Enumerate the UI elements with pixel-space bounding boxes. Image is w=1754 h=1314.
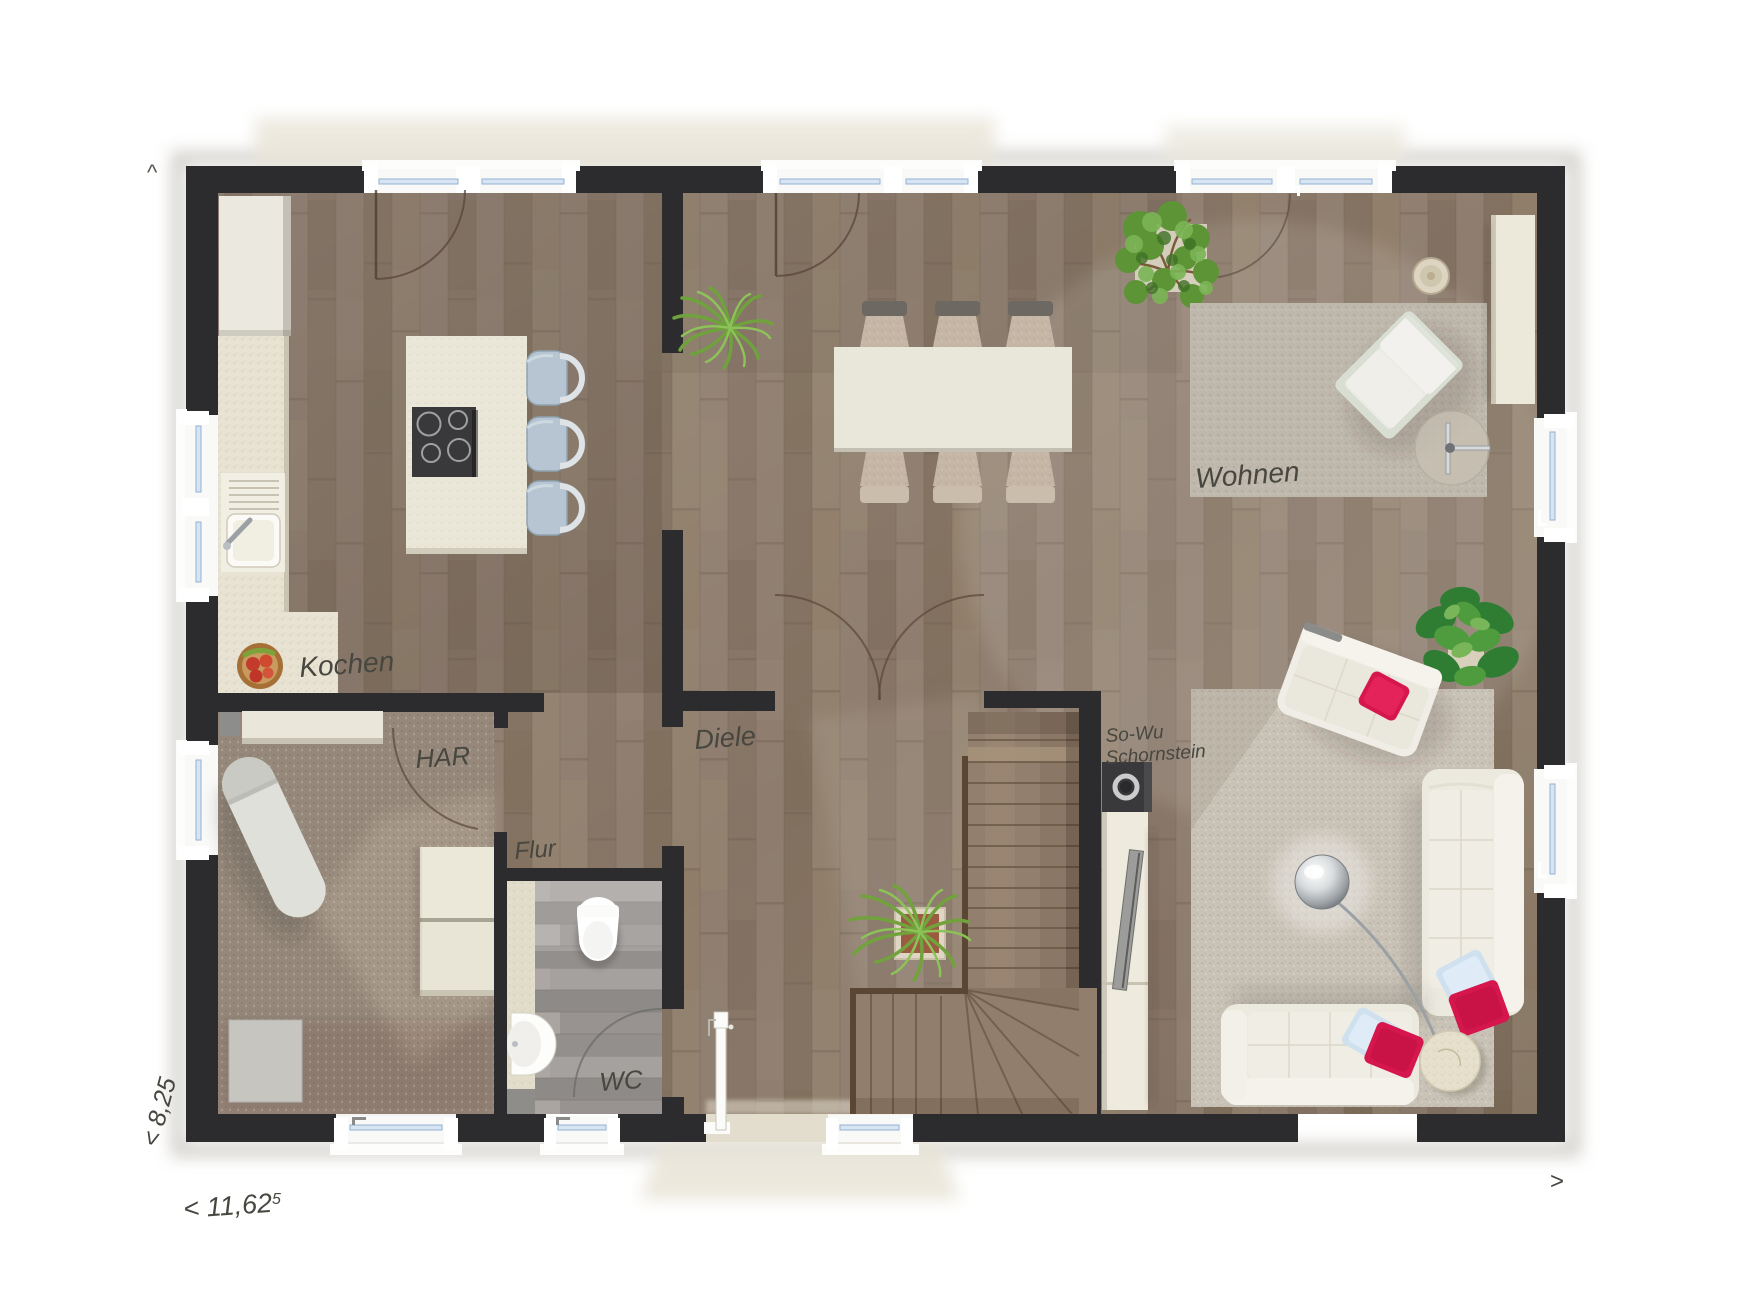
svg-text:So-Wu: So-Wu [1105,722,1165,747]
svg-text:HAR: HAR [414,740,471,774]
svg-text:5: 5 [272,1191,281,1208]
svg-text:^: ^ [147,160,158,185]
svg-text:WC: WC [598,1064,644,1097]
svg-text:>: > [1550,1168,1564,1195]
svg-text:< 11,62: < 11,62 [182,1188,273,1224]
svg-text:Flur: Flur [514,835,558,865]
svg-text:Kochen: Kochen [298,645,395,683]
svg-text:Diele: Diele [693,721,756,755]
